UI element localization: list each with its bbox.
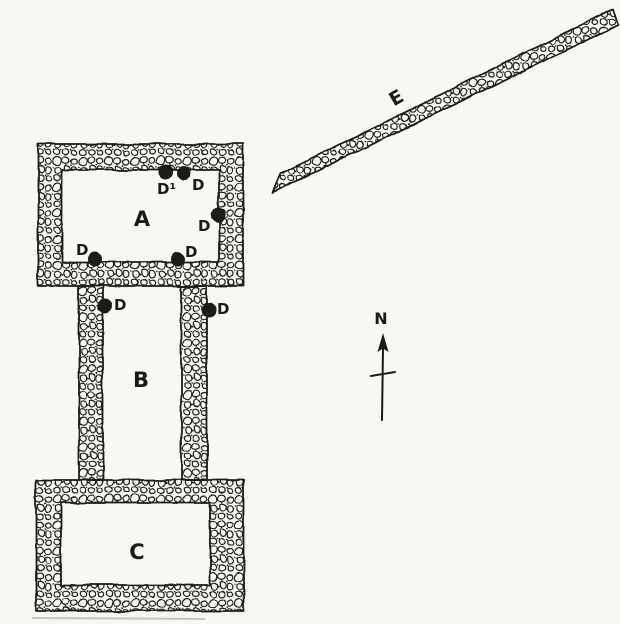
site-plan-figure: A B C D¹ D D D D D D E N [0, 0, 620, 624]
north-label: N [374, 309, 387, 328]
post-hole-label-d1: D¹ [157, 180, 176, 198]
post-hole-dot-2 [177, 166, 191, 180]
room-c-label: C [129, 540, 144, 564]
paper-shadow-line [32, 618, 205, 619]
post-hole-dot-4 [88, 252, 102, 266]
post-hole-label-2: D [192, 176, 204, 194]
corridor-b-wall-left [79, 286, 103, 480]
post-hole-label-7: D [217, 300, 229, 318]
north-arrow: N [371, 309, 395, 420]
post-hole-label-6: D [114, 296, 126, 314]
post-hole-label-3: D [198, 217, 210, 235]
wall-e [272, 9, 618, 193]
post-hole-dot-5 [171, 252, 185, 266]
post-hole-dot-d1 [159, 165, 173, 179]
post-hole-dot-6 [98, 299, 113, 314]
room-b-label: B [133, 368, 149, 392]
post-hole-label-4: D [76, 241, 88, 259]
room-a-label: A [134, 207, 151, 231]
site-plan-drawing: A B C D¹ D D D D D D E N [0, 0, 620, 624]
post-hole-dot-3 [211, 208, 226, 223]
north-arrow-shaft [382, 349, 383, 420]
post-hole-label-5: D [185, 243, 197, 261]
post-hole-dot-7 [202, 303, 217, 318]
corridor-b-wall-right [181, 286, 207, 480]
wall-e-label: E [385, 85, 407, 111]
